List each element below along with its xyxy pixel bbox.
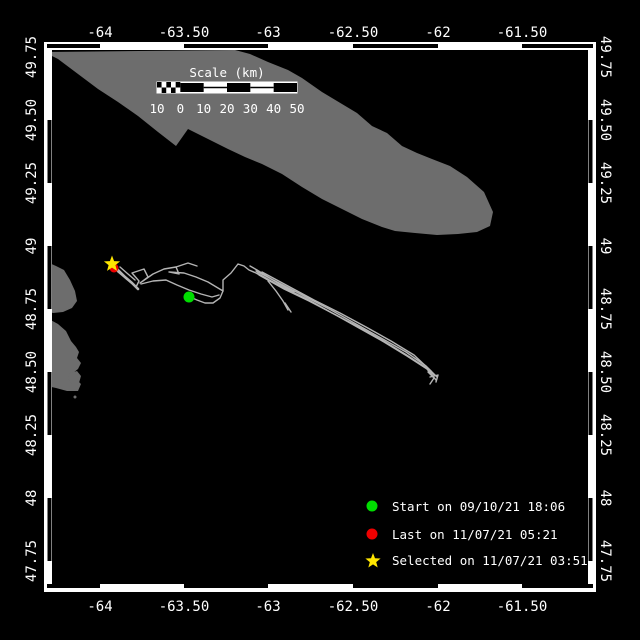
frame-top-band: [44, 42, 596, 50]
start-position-marker: [184, 292, 195, 303]
x-axis-label-bottom: -62: [425, 599, 450, 615]
x-axis-label-bottom: -63: [255, 599, 280, 615]
scale-bar-label: 20: [219, 101, 234, 116]
y-axis-label-left: 49: [24, 238, 40, 255]
frame-segment: [48, 498, 52, 561]
scale-bar-label: 0: [177, 101, 185, 116]
y-axis-label-right: 49.50: [597, 99, 613, 141]
track-segment: [176, 263, 197, 267]
y-axis-label-right: 49: [597, 238, 613, 255]
x-axis-label-top: -63: [255, 25, 280, 41]
y-axis-label-left: 49.75: [24, 36, 40, 78]
scale-bar-checker-cell: [171, 88, 176, 94]
y-axis-label-right: 47.75: [597, 540, 613, 582]
legend-marker-selected-star-icon: [365, 553, 380, 568]
scale-bar-checker-cell: [166, 88, 171, 94]
legend-label: Selected on 11/07/21 03:51: [392, 553, 588, 568]
scale-bar-checker-cell: [162, 88, 167, 94]
frame-segment: [184, 44, 268, 48]
scale-bar-checker-cell: [162, 82, 167, 88]
frame-segment: [184, 584, 268, 588]
y-axis-label-left: 48.50: [24, 351, 40, 393]
frame-segment: [48, 372, 52, 435]
scale-bar-label: 10: [196, 101, 211, 116]
x-axis-label-top: -63.50: [159, 25, 210, 41]
legend: Start on 09/10/21 18:06Last on 11/07/21 …: [365, 499, 587, 568]
x-axis-label-bottom: -63.50: [159, 599, 210, 615]
frame-segment: [589, 372, 593, 435]
y-axis-label-left: 48.75: [24, 288, 40, 330]
y-axis-label-left: 48: [24, 490, 40, 507]
scale-bar-segment: [227, 83, 250, 92]
x-axis-label-bottom: -61.50: [497, 599, 548, 615]
scale-bar-segment-stripe: [204, 87, 227, 89]
frame-segment: [47, 44, 100, 48]
drifter-track-layer: [113, 263, 438, 384]
frame-segment: [522, 584, 593, 588]
frame-segment: [353, 584, 438, 588]
scale-bar-segment: [274, 83, 297, 92]
scale-bar-title: Scale (km): [189, 65, 264, 80]
track-segment: [257, 273, 434, 375]
legend-label: Last on 11/07/21 05:21: [392, 527, 558, 542]
x-axis-label-bottom: -62.50: [328, 599, 379, 615]
y-axis-label-right: 48: [597, 490, 613, 507]
drifter-track-map: -64-64-63.50-63.50-63-63-62.50-62.50-62-…: [0, 0, 640, 640]
frame-segment: [589, 498, 593, 561]
scale-bar-label: 10: [149, 101, 164, 116]
y-axis-label-right: 48.50: [597, 351, 613, 393]
y-axis-label-left: 47.75: [24, 540, 40, 582]
scale-bar-checker-cell: [157, 88, 162, 94]
legend-marker-last-icon: [367, 529, 378, 540]
x-axis-label-top: -64: [87, 25, 112, 41]
x-axis-label-bottom: -64: [87, 599, 112, 615]
track-segment: [250, 266, 294, 292]
frame-segment: [48, 246, 52, 309]
y-axis-label-right: 48.25: [597, 414, 613, 456]
x-axis-label-top: -62: [425, 25, 450, 41]
scale-bar-checker-cell: [176, 82, 181, 88]
legend-marker-start-icon: [367, 501, 378, 512]
map-window: -64-64-63.50-63.50-63-63-62.50-62.50-62-…: [0, 0, 640, 640]
scale-bar-segment-stripe: [250, 87, 273, 89]
y-axis-label-left: 48.25: [24, 414, 40, 456]
y-axis-label-left: 49.25: [24, 162, 40, 204]
track-segment: [259, 275, 436, 380]
map-markers-layer: [104, 256, 195, 303]
frame-segment: [589, 120, 593, 183]
frame-segment: [353, 44, 438, 48]
scale-bar-checker-cell: [157, 82, 162, 88]
anticosti-island: [48, 50, 493, 235]
land-dot: [74, 396, 77, 399]
frame-segment: [47, 584, 100, 588]
x-axis-label-top: -61.50: [497, 25, 548, 41]
scale-bar-segment: [180, 83, 203, 92]
scale-bar-checker-cell: [171, 82, 176, 88]
frame-segment: [522, 44, 593, 48]
legend-label: Start on 09/10/21 18:06: [392, 499, 565, 514]
scale-bar-label: 50: [289, 101, 304, 116]
track-segment: [190, 291, 223, 303]
frame-bottom-band: [44, 584, 596, 592]
scale-bar-label: 30: [243, 101, 258, 116]
y-axis-label-right: 49.75: [597, 36, 613, 78]
y-axis-label-left: 49.50: [24, 99, 40, 141]
y-axis-label-right: 49.25: [597, 162, 613, 204]
y-axis-label-right: 48.75: [597, 288, 613, 330]
scale-bar-checker-cell: [176, 88, 181, 94]
scale-bar-label: 40: [266, 101, 281, 116]
scale-bar-checker-cell: [166, 82, 171, 88]
frame-segment: [48, 120, 52, 183]
frame-segment: [589, 246, 593, 309]
x-axis-label-top: -62.50: [328, 25, 379, 41]
track-segment: [141, 280, 219, 297]
